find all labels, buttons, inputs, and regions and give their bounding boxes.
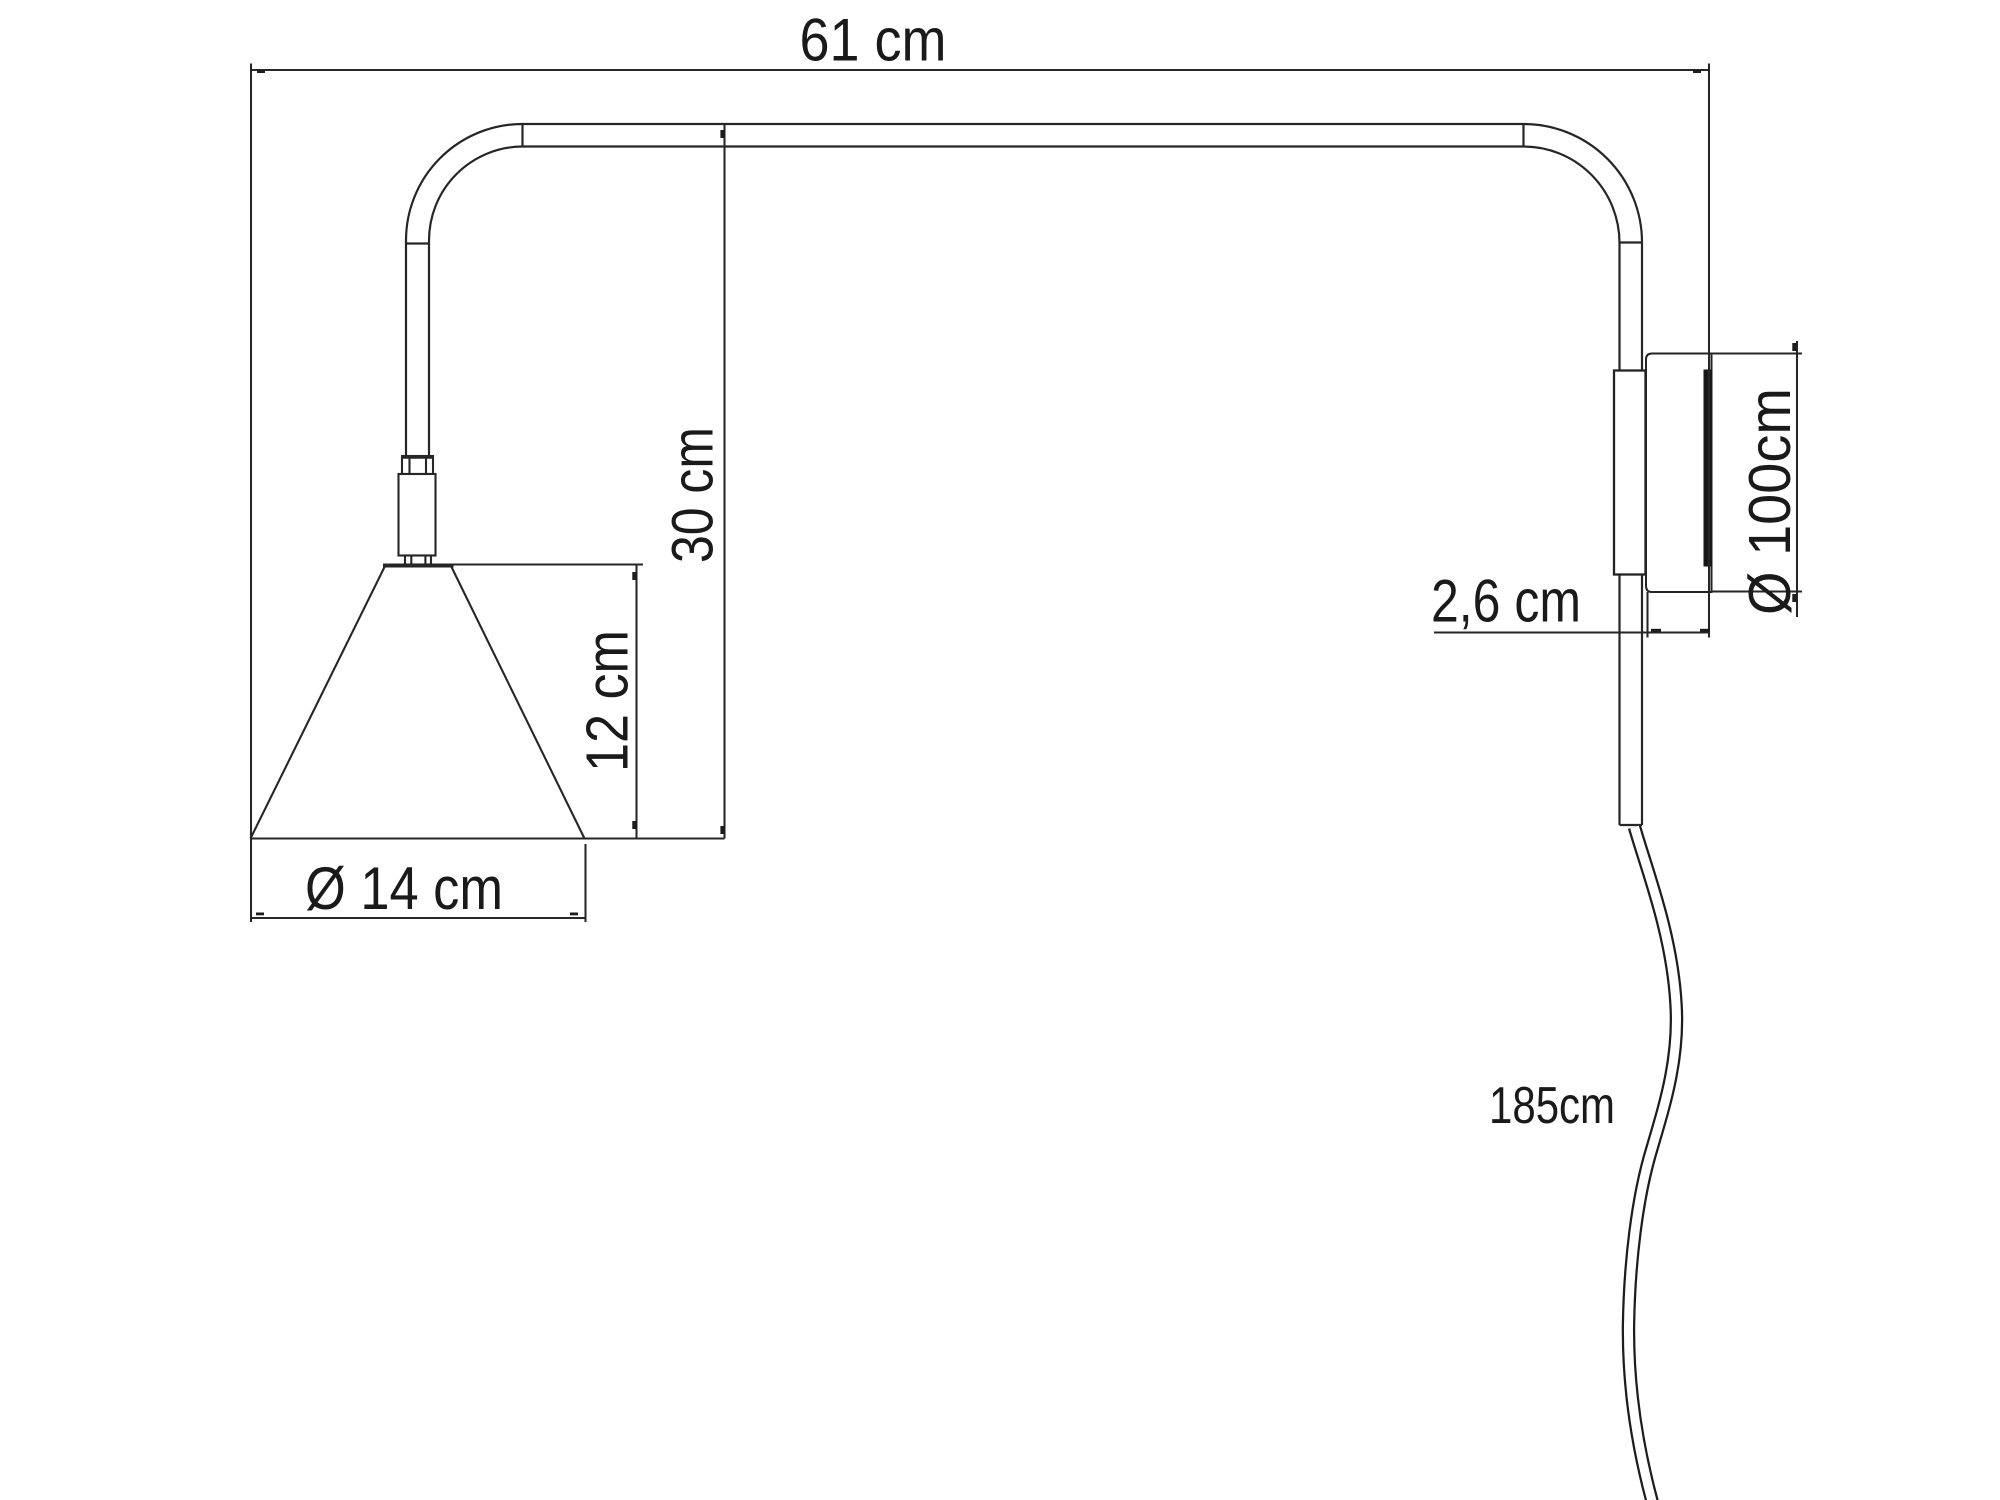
svg-text:61 cm: 61 cm [800, 7, 947, 74]
svg-text:Ø 100cm: Ø 100cm [1737, 388, 1803, 615]
svg-text:12 cm: 12 cm [575, 630, 641, 772]
svg-text:185cm: 185cm [1489, 1077, 1615, 1135]
svg-text:30 cm: 30 cm [661, 427, 726, 563]
svg-text:Ø 14 cm: Ø 14 cm [305, 855, 503, 922]
svg-text:2,6 cm: 2,6 cm [1431, 568, 1581, 635]
